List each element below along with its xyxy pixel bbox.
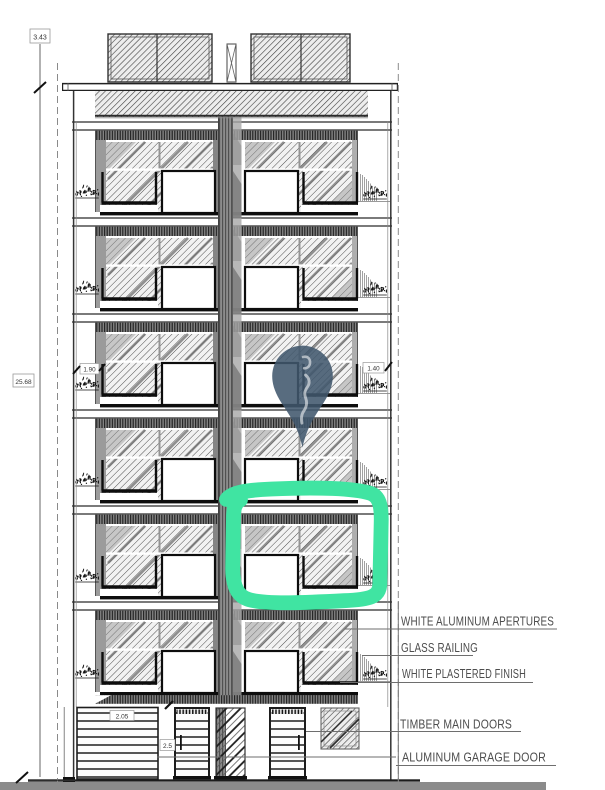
svg-text:1.40: 1.40 bbox=[367, 366, 380, 373]
svg-text:1.90: 1.90 bbox=[83, 367, 96, 374]
svg-text:25.68: 25.68 bbox=[15, 379, 32, 386]
svg-text:GLASS RAILING: GLASS RAILING bbox=[401, 641, 478, 655]
svg-text:WHITE ALUMINUM APERTURES: WHITE ALUMINUM APERTURES bbox=[401, 615, 554, 629]
svg-text:3.43: 3.43 bbox=[33, 35, 47, 42]
svg-text:2.05: 2.05 bbox=[116, 713, 129, 720]
svg-text:WHITE PLASTERED FINISH: WHITE PLASTERED FINISH bbox=[402, 667, 526, 681]
svg-text:TIMBER MAIN DOORS: TIMBER MAIN DOORS bbox=[400, 718, 512, 732]
svg-text:ALUMINUM GARAGE DOOR: ALUMINUM GARAGE DOOR bbox=[402, 751, 546, 765]
svg-text:2.5: 2.5 bbox=[163, 743, 172, 750]
